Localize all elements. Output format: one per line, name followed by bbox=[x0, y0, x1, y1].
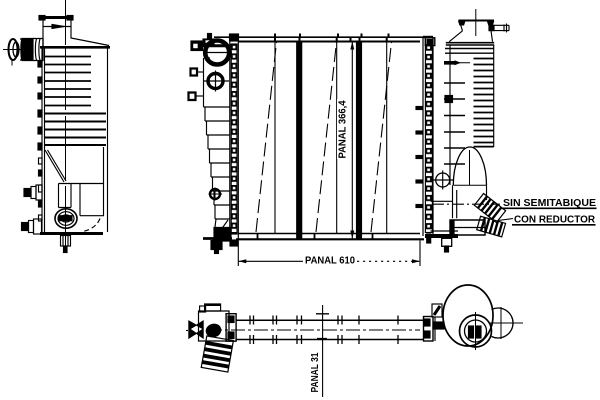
svg-text:CON REDUCTOR: CON REDUCTOR bbox=[514, 214, 595, 226]
svg-text:PANAL 610: PANAL 610 bbox=[305, 255, 355, 267]
svg-text:PANAL 31: PANAL 31 bbox=[309, 352, 321, 392]
svg-text:SIN SEMITABIQUE: SIN SEMITABIQUE bbox=[503, 197, 596, 209]
svg-text:PANAL 366,4: PANAL 366,4 bbox=[337, 100, 349, 158]
